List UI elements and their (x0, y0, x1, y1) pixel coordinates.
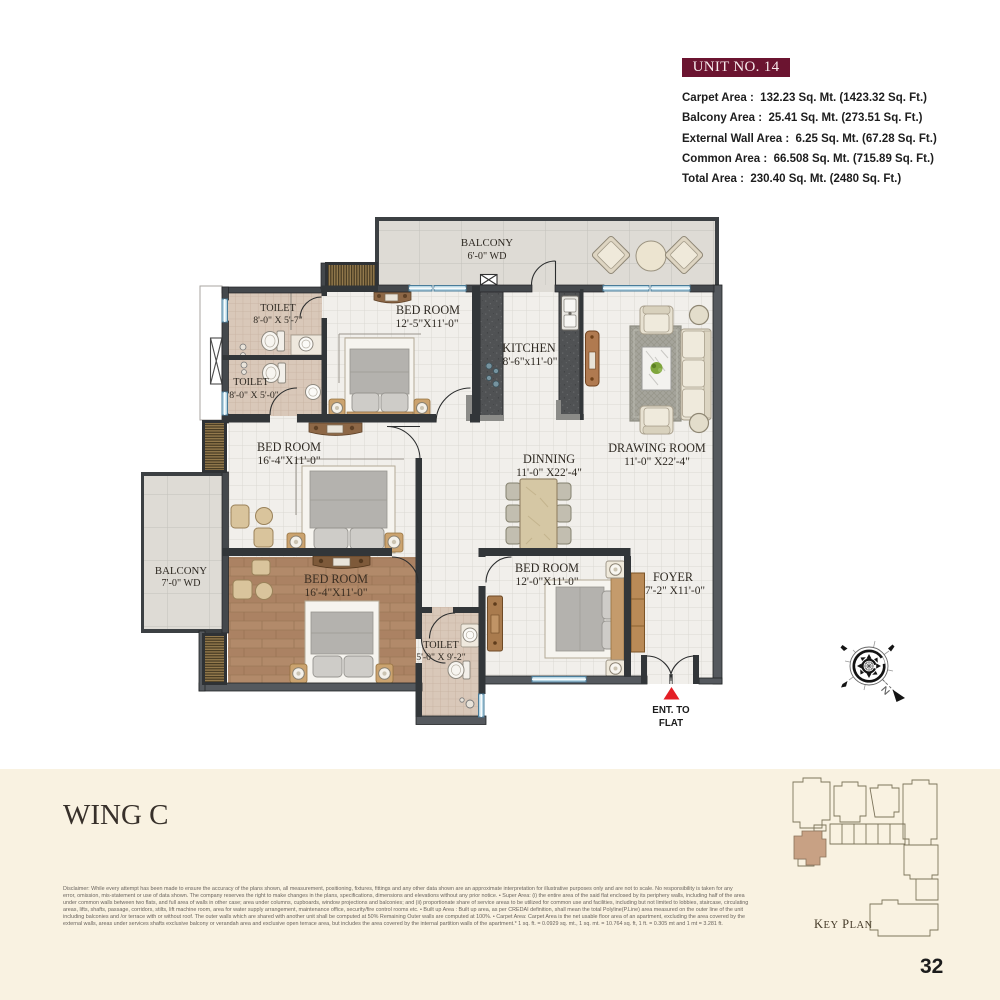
svg-text:BALCONY: BALCONY (155, 565, 207, 577)
svg-text:16'-4"X11'-0": 16'-4"X11'-0" (305, 587, 368, 599)
svg-text:TOILET: TOILET (260, 303, 296, 314)
svg-text:8'-6"x11'-0": 8'-6"x11'-0" (503, 356, 558, 368)
svg-text:12'-0"X11'-0": 12'-0"X11'-0" (516, 576, 579, 588)
svg-text:BED ROOM: BED ROOM (515, 561, 579, 575)
svg-text:6'-0" WD: 6'-0" WD (468, 251, 507, 262)
svg-text:16'-4"X11'-0": 16'-4"X11'-0" (258, 455, 321, 467)
svg-text:BED ROOM: BED ROOM (396, 303, 460, 317)
svg-text:FOYER: FOYER (653, 570, 694, 584)
svg-text:DINNING: DINNING (523, 452, 575, 466)
svg-text:8'-0" X 5'-7": 8'-0" X 5'-7" (253, 315, 303, 326)
svg-text:KITCHEN: KITCHEN (502, 341, 556, 355)
svg-text:DRAWING ROOM: DRAWING ROOM (608, 441, 706, 455)
svg-text:12'-5"X11'-0": 12'-5"X11'-0" (396, 318, 459, 330)
svg-text:BALCONY: BALCONY (461, 237, 513, 249)
svg-text:5'-0" X 9'-2": 5'-0" X 9'-2" (416, 652, 466, 663)
svg-text:11'-0" X22'-4": 11'-0" X22'-4" (516, 467, 582, 479)
svg-text:7'-2" X11'-0": 7'-2" X11'-0" (645, 585, 705, 597)
svg-text:ENT. TO: ENT. TO (652, 705, 690, 716)
svg-text:TOILET: TOILET (233, 377, 269, 388)
svg-text:FLAT: FLAT (659, 718, 683, 729)
svg-text:8'-0" X 5'-0": 8'-0" X 5'-0" (229, 390, 279, 401)
svg-text:11'-0" X22'-4": 11'-0" X22'-4" (624, 456, 690, 468)
svg-text:BED ROOM: BED ROOM (304, 572, 368, 586)
svg-text:7'-0" WD: 7'-0" WD (162, 578, 201, 589)
svg-text:TOILET: TOILET (423, 640, 459, 651)
svg-text:BED ROOM: BED ROOM (257, 440, 321, 454)
